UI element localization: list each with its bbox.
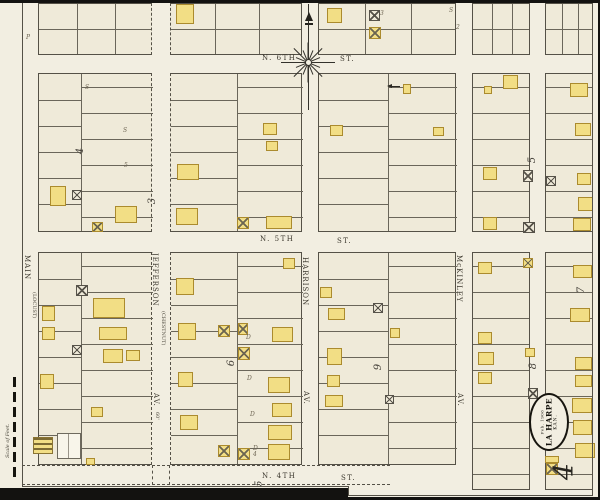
lot-line [237, 422, 303, 423]
dwelling-mark: D [247, 376, 252, 382]
building-dwelling [263, 123, 277, 135]
lot-line [546, 139, 592, 140]
block-number-3: 3 [148, 198, 158, 204]
street-label-main-former: (LOCUST) [31, 292, 36, 318]
building-dwelling [570, 308, 590, 322]
lot-line [473, 113, 529, 114]
lot-line [388, 113, 457, 114]
building-dwelling [403, 84, 411, 94]
lot-line [171, 152, 237, 153]
stamp-city: LA HARPE [545, 395, 554, 449]
outbuilding-crossed-yellow [237, 217, 249, 229]
lot-line [319, 100, 388, 101]
lot-line [81, 165, 153, 166]
lot-line [546, 165, 592, 166]
building-dwelling [272, 403, 292, 417]
outbuilding-crossed [72, 345, 82, 355]
lot-line [237, 139, 303, 140]
lot-line [237, 318, 303, 319]
stamp-state: KAN. [554, 395, 559, 449]
scale-label: Scale of Feet. [5, 423, 11, 458]
lot-line [237, 191, 303, 192]
lot-letter-p: P [26, 35, 30, 41]
lot-line [39, 178, 81, 179]
building-dwelling [266, 216, 292, 229]
lot-line [81, 139, 153, 140]
lot-line [171, 409, 237, 410]
outbuilding-crossed [523, 170, 533, 182]
lot-line [388, 266, 457, 267]
block-number-7: 7 [577, 287, 587, 293]
building-dwelling [176, 278, 194, 295]
lot-line [319, 409, 388, 410]
building-dwelling [327, 8, 342, 23]
sanborn-map-sheet: N. 6THST.N. 5THST.N. 4THST.MAIN(LOCUST)J… [0, 0, 600, 500]
lot-line [39, 100, 81, 101]
lot-line [81, 266, 153, 267]
scale-bar [13, 377, 16, 478]
scan-edge-top [0, 0, 600, 3]
compass-hub [305, 59, 312, 66]
building-dwelling [503, 75, 518, 89]
building-dwelling [268, 444, 290, 460]
lot-line [546, 29, 592, 30]
alley-line [388, 253, 389, 464]
lot-line [319, 152, 388, 153]
building-dwelling [266, 141, 278, 151]
lot-letter-s: S [449, 8, 453, 14]
building-dwelling [283, 258, 295, 269]
building-special-striped [33, 437, 53, 454]
city-block [472, 3, 530, 55]
building-dwelling [176, 208, 198, 225]
lot-line [473, 344, 529, 345]
building-dwelling [50, 186, 66, 206]
building-dwelling [325, 395, 343, 407]
alley-line [388, 74, 389, 231]
lot-line [39, 126, 81, 127]
lot-number: 3 [380, 11, 384, 17]
lot-line [546, 113, 592, 114]
lot-line [473, 191, 529, 192]
lot-line [546, 344, 592, 345]
building-dwelling [42, 327, 55, 340]
building-dwelling [390, 328, 400, 338]
lot-line [171, 29, 301, 30]
building-dwelling [573, 218, 591, 231]
lot-line [81, 113, 153, 114]
building-outline [57, 433, 81, 459]
map-border-left [22, 3, 23, 487]
outbuilding-crossed [373, 303, 383, 313]
lot-line [237, 113, 303, 114]
lot-line [473, 422, 529, 423]
building-dwelling [478, 372, 492, 384]
building-dwelling [483, 167, 497, 180]
outbuilding-crossed-yellow [238, 347, 250, 360]
street-label-mckinley: McKINLEY [455, 255, 462, 303]
lot-line [473, 217, 529, 218]
lot-line [81, 191, 153, 192]
lot-number: 4 [253, 452, 257, 458]
lot-line [81, 318, 153, 319]
block-number-8: 8 [529, 363, 539, 369]
building-dwelling [268, 377, 290, 393]
lot-line [237, 87, 303, 88]
building-dwelling [115, 206, 137, 223]
lot-line [473, 370, 529, 371]
outbuilding-crossed [385, 395, 394, 404]
lot-line [388, 87, 457, 88]
street-label-harrison-av: AV. [302, 391, 309, 405]
lot-line [473, 139, 529, 140]
outbuilding-crossed [546, 176, 556, 186]
lot-line [171, 126, 237, 127]
lot-line [39, 357, 81, 358]
lot-line [546, 191, 592, 192]
lot-line [237, 396, 303, 397]
lot-line [546, 370, 592, 371]
lot-line [388, 139, 457, 140]
building-dwelling [86, 458, 95, 465]
lot-line [171, 100, 237, 101]
lot-line [81, 448, 153, 449]
outbuilding-crossed-yellow [523, 258, 533, 268]
sheet-number: 4 [551, 463, 578, 480]
building-dwelling [484, 86, 492, 94]
lot-line [237, 344, 303, 345]
lot-line [473, 474, 529, 475]
building-dwelling [178, 372, 193, 387]
street-label-n-5th-st: ST. [337, 238, 352, 245]
street-label-jefferson: JEFFERSON [151, 253, 158, 307]
building-dwelling [575, 123, 591, 136]
block-number-5: 5 [528, 157, 538, 163]
block-number-4: 4 [76, 148, 86, 154]
lot-line [473, 396, 529, 397]
street-label-mckinley-av: AV. [456, 393, 463, 407]
map-border-bottom-west [22, 486, 348, 487]
building-dwelling [577, 173, 591, 185]
lot-line [81, 292, 153, 293]
west-arrow-icon [390, 86, 400, 87]
building-dwelling [176, 4, 194, 24]
lot-line [39, 29, 151, 30]
city-block [318, 73, 456, 232]
street-label-jefferson-av: AV. [152, 393, 159, 407]
outbuilding-crossed-yellow [369, 27, 381, 39]
lot-line [81, 370, 153, 371]
lot-line [473, 318, 529, 319]
lot-letter-s: S [85, 85, 89, 91]
building-dwelling [573, 265, 592, 278]
street-label-n-5th: N. 5TH [260, 236, 294, 243]
building-dwelling [99, 327, 127, 340]
lot-number: 2 [456, 25, 460, 31]
scan-edge-bottom-west [0, 488, 348, 500]
building-dwelling [478, 262, 492, 274]
building-dwelling [126, 350, 140, 361]
building-dwelling [578, 197, 593, 211]
lot-line [171, 435, 237, 436]
city-block [545, 3, 593, 55]
n-4th-street-dashed-edge [22, 465, 390, 466]
lot-line [81, 396, 153, 397]
building-dwelling [572, 398, 592, 413]
adjoining-sheet-number: 5 [255, 481, 264, 487]
north-arrow-icon [305, 12, 313, 21]
street-label-n-6th: N. 6TH [262, 55, 296, 62]
lot-line [388, 422, 457, 423]
street-label-main: MAIN [23, 255, 30, 280]
block-number-6: 6 [227, 360, 237, 366]
dwelling-mark: D [246, 335, 251, 341]
building-dwelling [40, 374, 54, 389]
lot-line [81, 87, 153, 88]
street-label-n-4th: N. 4TH [262, 473, 296, 480]
lot-line [319, 279, 388, 280]
city-block [472, 252, 530, 490]
map-border-right [592, 3, 593, 496]
city-block [38, 3, 152, 55]
lot-line [81, 344, 153, 345]
lot-line [39, 279, 81, 280]
building-dwelling [483, 217, 497, 230]
publisher-stamp: Feb. 1906 LA HARPE KAN. [529, 393, 569, 451]
dwelling-mark: D [250, 412, 255, 418]
street-label-n-6th-st: ST. [340, 56, 355, 63]
lot-line [237, 165, 303, 166]
outbuilding-crossed-yellow [238, 448, 250, 460]
building-dwelling [42, 306, 55, 321]
outbuilding-crossed-yellow [218, 445, 230, 457]
building-dwelling [330, 125, 343, 136]
lot-line [319, 435, 388, 436]
n-4th-street-dashed-edge [22, 484, 390, 485]
outbuilding-crossed-yellow [218, 325, 230, 337]
building-dwelling [320, 287, 332, 298]
building-dwelling [433, 127, 444, 136]
map-border-bottom-east [348, 495, 593, 496]
building-dwelling [478, 352, 494, 365]
lot-line [388, 165, 457, 166]
lot-line [388, 344, 457, 345]
lot-line [171, 357, 237, 358]
lot-line [388, 370, 457, 371]
lot-line [171, 305, 237, 306]
stamp-text: Feb. 1906 LA HARPE KAN. [540, 395, 559, 449]
alley-line [237, 74, 238, 231]
lot-line [39, 409, 81, 410]
block-number-9: 9 [374, 364, 384, 370]
city-block [472, 73, 530, 232]
lot-line [473, 165, 529, 166]
building-dwelling [575, 375, 592, 387]
building-dwelling [268, 425, 292, 440]
lot-line [388, 191, 457, 192]
building-dwelling [177, 164, 199, 180]
building-dwelling [178, 323, 196, 340]
building-dwelling [570, 83, 588, 97]
map-border-step [348, 486, 349, 496]
lot-line [388, 217, 457, 218]
building-dwelling [328, 308, 345, 320]
building-dwelling [272, 327, 293, 342]
street-label-harrison: HARRISON [301, 257, 308, 306]
building-dwelling [327, 348, 342, 365]
lot-line [81, 422, 153, 423]
street-label-jefferson-former: (CHESTNUT) [160, 311, 165, 345]
building-dwelling [478, 332, 492, 344]
lot-line [473, 87, 529, 88]
north-arrow-bar [305, 23, 313, 25]
lot-letter-s: S [123, 128, 127, 134]
lot-line [473, 29, 529, 30]
lot-line [473, 448, 529, 449]
building-dwelling [575, 357, 592, 370]
lot-line [388, 448, 457, 449]
lot-line [237, 370, 303, 371]
outbuilding-crossed [72, 190, 82, 200]
building-dwelling [103, 349, 123, 363]
building-dwelling [327, 375, 340, 387]
outbuilding-crossed-yellow [92, 222, 103, 232]
lot-line [388, 292, 457, 293]
lot-line [319, 204, 388, 205]
lot-line [473, 292, 529, 293]
building-dwelling [91, 407, 103, 417]
lot-line [319, 331, 388, 332]
jefferson-dashed-stub [152, 465, 153, 485]
lot-number: 5 [124, 163, 128, 169]
lot-line [171, 204, 237, 205]
building-dwelling [525, 348, 535, 357]
jefferson-dashed-stub [169, 465, 170, 485]
outbuilding-crossed [369, 10, 380, 21]
street-width-60ft: 60' [154, 412, 159, 420]
outbuilding-crossed [523, 222, 535, 233]
building-dwelling [573, 420, 592, 435]
lot-line [388, 318, 457, 319]
lot-line [237, 292, 303, 293]
outbuilding-crossed [76, 285, 88, 296]
lot-line [319, 178, 388, 179]
lot-line [319, 29, 455, 30]
lot-line [388, 396, 457, 397]
building-dwelling [180, 415, 198, 430]
building-dwelling [93, 298, 125, 318]
street-label-n-4th-st: ST. [341, 475, 356, 482]
